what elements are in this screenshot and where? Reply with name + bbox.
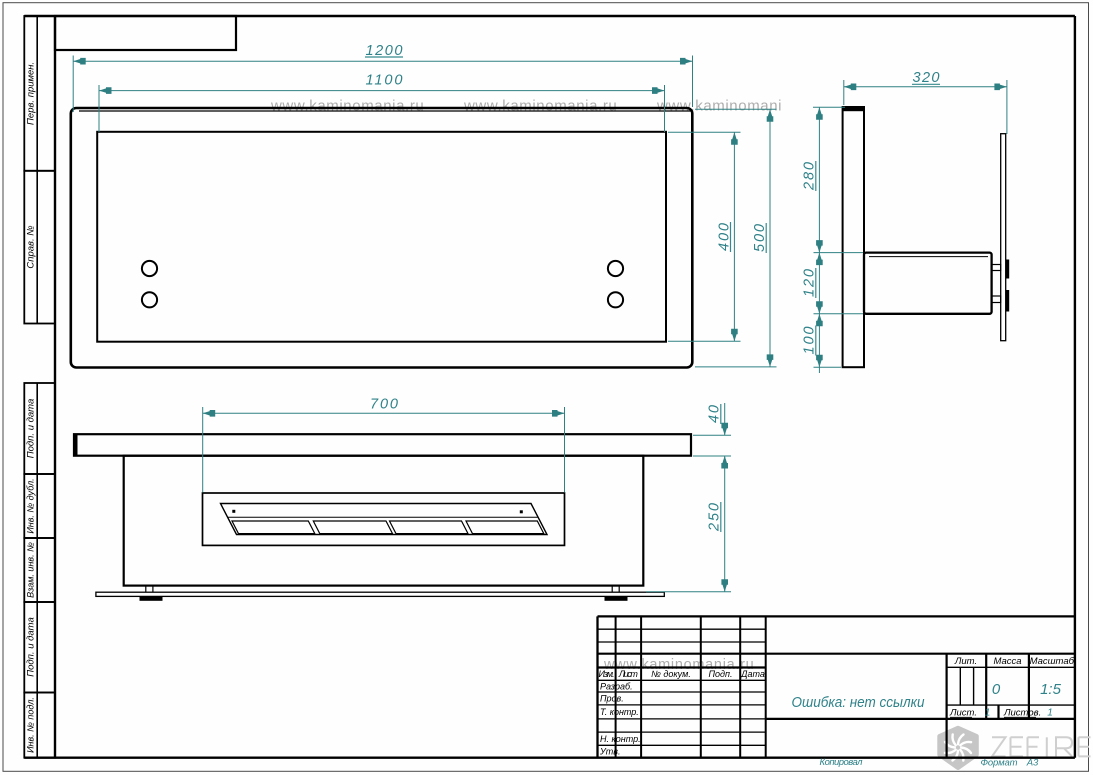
svg-text:1: 1 — [1047, 708, 1053, 719]
svg-text:Копировал: Копировал — [820, 757, 864, 768]
svg-text:1100: 1100 — [366, 73, 403, 89]
svg-text:Разраб.: Разраб. — [600, 682, 633, 692]
svg-text:Подп. и дата: Подп. и дата — [26, 617, 37, 676]
svg-text:Справ. №: Справ. № — [26, 225, 37, 268]
svg-text:№ докум.: № докум. — [651, 669, 691, 679]
svg-text:www.kaminomani: www.kaminomani — [656, 98, 782, 115]
svg-text:320: 320 — [913, 70, 940, 86]
svg-text:250: 250 — [707, 503, 723, 532]
svg-text:1: 1 — [985, 708, 991, 719]
svg-text:1200: 1200 — [366, 43, 403, 59]
svg-text:Утв.: Утв. — [599, 747, 620, 757]
svg-text:Подп. и дата: Подп. и дата — [26, 399, 37, 458]
svg-text:Т. контр.: Т. контр. — [600, 707, 639, 717]
svg-text:1:5: 1:5 — [1040, 681, 1062, 698]
svg-text:0: 0 — [992, 681, 1001, 698]
svg-text:Ошибка: нет ссылки: Ошибка: нет ссылки — [792, 694, 926, 711]
svg-text:120: 120 — [802, 269, 818, 297]
svg-text:Инв. № подл.: Инв. № подл. — [26, 697, 36, 753]
svg-text:Лист.: Лист. — [949, 708, 977, 719]
svg-text:40: 40 — [707, 405, 723, 423]
svg-text:500: 500 — [752, 224, 768, 252]
svg-text:Перв. примен.: Перв. примен. — [26, 62, 37, 125]
svg-text:www.kaminomania.ru: www.kaminomania.ru — [463, 98, 617, 115]
svg-text:700: 700 — [370, 397, 398, 413]
svg-text:Лист: Лист — [618, 669, 639, 679]
svg-text:Н. контр.: Н. контр. — [600, 734, 641, 744]
svg-text:Инв. № дубл.: Инв. № дубл. — [26, 478, 36, 533]
svg-text:Лит.: Лит. — [954, 656, 977, 667]
svg-text:280: 280 — [802, 162, 818, 191]
svg-text:Пров.: Пров. — [600, 694, 624, 704]
svg-text:www.kaminomania.ru: www.kaminomania.ru — [270, 98, 424, 115]
svg-text:Взам. инв. №: Взам. инв. № — [26, 542, 36, 598]
svg-text:Формат: Формат — [981, 758, 1018, 769]
svg-text:100: 100 — [802, 327, 818, 355]
svg-text:Масса: Масса — [993, 656, 1021, 667]
svg-text:Изм.: Изм. — [599, 669, 615, 679]
svg-text:А3: А3 — [1026, 758, 1039, 769]
svg-text:Подп.: Подп. — [709, 669, 733, 679]
svg-text:Листов.: Листов. — [1003, 708, 1041, 719]
svg-text:Масштаб: Масштаб — [1030, 656, 1075, 667]
svg-text:Дата: Дата — [740, 669, 765, 679]
